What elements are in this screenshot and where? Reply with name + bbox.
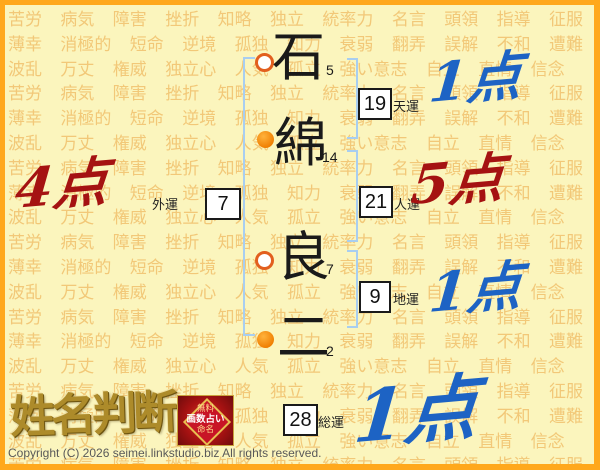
name-character: 二 [277, 311, 330, 364]
earth-luck-score: 1点 [427, 258, 524, 320]
outer-luck-score: 4点 [13, 154, 110, 216]
name-character: 石 [272, 31, 325, 84]
stroke-count: 7 [326, 261, 334, 277]
outer-luck-bracket [243, 57, 255, 336]
heaven-luck-value: 19 [358, 88, 392, 120]
person-luck-value: 21 [359, 186, 393, 218]
name-character: 良 [277, 231, 330, 284]
seal-line-3: 命名 [197, 426, 214, 436]
outer-luck-value: 7 [205, 188, 241, 220]
filled-circle-marker [257, 331, 274, 348]
total-luck-value: 28 [283, 404, 318, 436]
filled-circle-marker [257, 131, 274, 148]
outer-luck-label: 外運 [152, 194, 178, 213]
name-character: 綿 [274, 117, 327, 170]
site-logo[interactable]: 姓名判断 [9, 389, 174, 440]
stroke-count: 2 [326, 343, 334, 359]
person-luck-score: 5点 [409, 150, 506, 212]
free-naming-seal[interactable]: 無料 画数占い 命名 [177, 395, 234, 446]
heaven-luck-score: 1点 [427, 48, 524, 110]
heaven-luck-label: 天運 [393, 96, 419, 115]
earth-luck-bracket [347, 250, 358, 328]
open-circle-marker [255, 251, 274, 270]
stroke-count: 5 [326, 62, 334, 78]
earth-luck-value: 9 [359, 281, 391, 313]
seimei-handan-page: 苦労 病気 障害 挫折 知略 独立 統率力 名言 頭領 指導 征服 薄幸 消極的… [0, 0, 600, 470]
total-luck-label: 総運 [318, 412, 344, 431]
earth-luck-label: 地運 [393, 289, 419, 308]
seal-text: 無料 画数占い 命名 [178, 396, 233, 445]
heaven-luck-bracket [347, 58, 358, 139]
person-luck-bracket [347, 150, 358, 242]
stroke-count: 14 [322, 149, 338, 165]
copyright-text: Copyright (C) 2026 seimei.linkstudio.biz… [8, 446, 321, 460]
total-luck-score: 1点 [351, 371, 481, 453]
